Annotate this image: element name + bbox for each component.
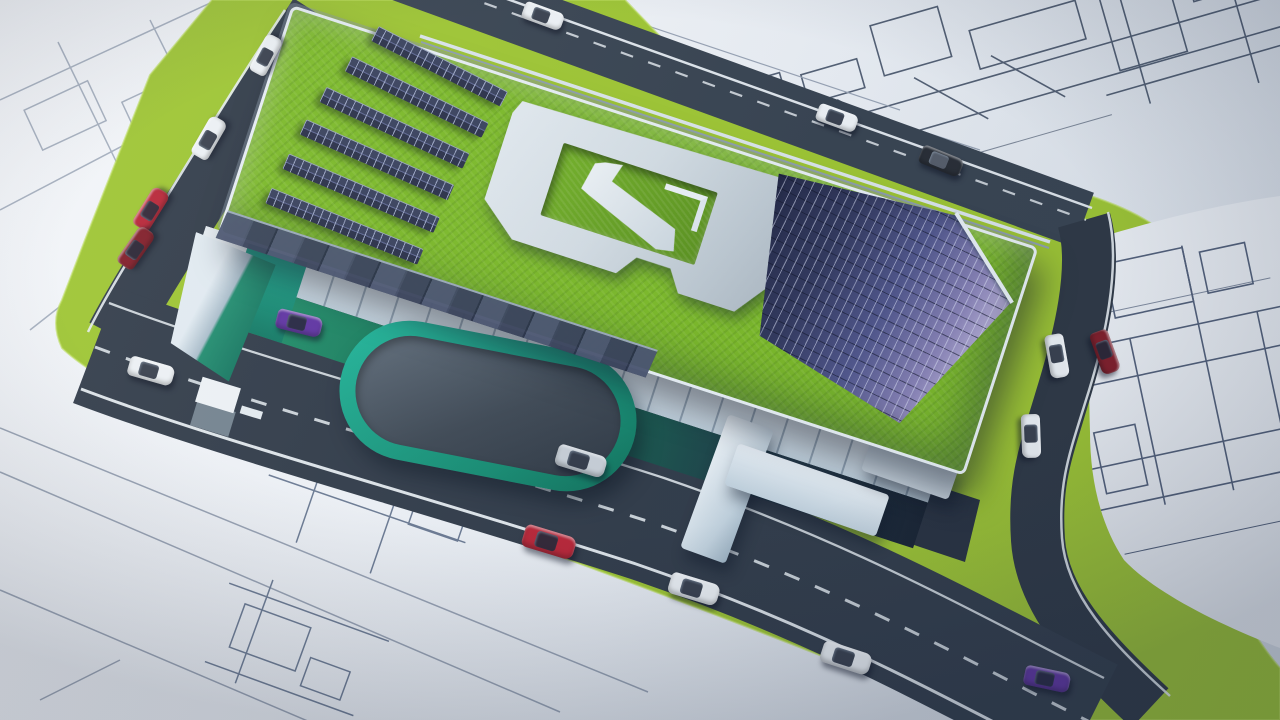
- toy-car-red: [520, 523, 577, 560]
- car-windshield: [139, 199, 161, 222]
- toy-car-white: [1044, 333, 1070, 379]
- photo-architectural-model: [0, 0, 1280, 720]
- toy-car-white: [814, 102, 859, 133]
- car-windshield: [286, 313, 308, 332]
- car-windshield: [531, 6, 552, 24]
- toy-car-white: [819, 640, 874, 677]
- car-windshield: [255, 46, 275, 68]
- car-windshield: [825, 108, 846, 126]
- car-windshield: [1034, 669, 1056, 687]
- car-windshield: [124, 238, 146, 261]
- car-windshield: [566, 449, 591, 471]
- toy-car-purple: [274, 308, 323, 339]
- toy-car-black: [917, 144, 965, 178]
- toy-car-silver: [554, 443, 609, 479]
- toy-car-white: [667, 571, 722, 607]
- toy-cars-layer: [0, 0, 1280, 720]
- toy-car-white: [126, 355, 176, 387]
- toy-car-white: [190, 114, 228, 161]
- car-windshield: [1024, 424, 1039, 443]
- toy-car-red: [131, 185, 170, 232]
- car-windshield: [197, 128, 218, 151]
- toy-car-white: [520, 0, 565, 31]
- toy-car-darkred: [1089, 328, 1122, 376]
- car-windshield: [831, 646, 856, 668]
- car-windshield: [533, 530, 559, 553]
- car-windshield: [1048, 344, 1065, 365]
- car-windshield: [137, 361, 160, 381]
- car-windshield: [679, 577, 704, 599]
- toy-car-white: [248, 32, 283, 77]
- toy-car-white: [1021, 414, 1042, 458]
- toy-car-purple: [1022, 664, 1071, 693]
- car-windshield: [1095, 339, 1114, 361]
- toy-car-darkred: [116, 225, 157, 272]
- car-windshield: [928, 150, 950, 170]
